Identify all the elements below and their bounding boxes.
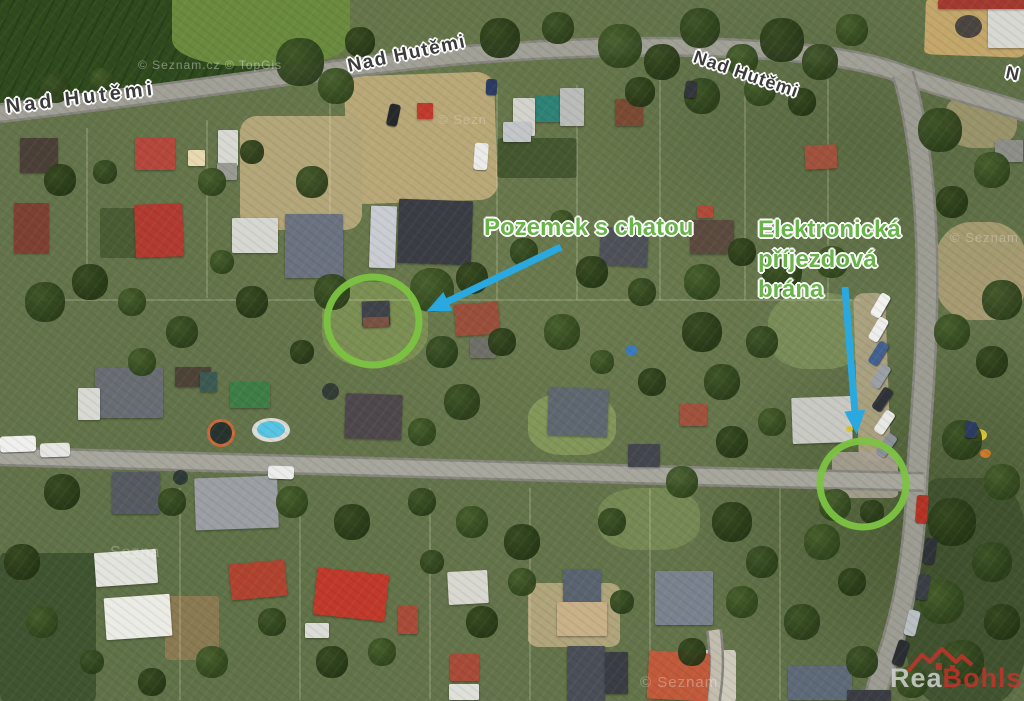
satellite-map[interactable]: Nad HutěmiNad HutěmiNad HutěmiNPozemek s… (0, 0, 1024, 701)
brand-roof-icon (906, 647, 976, 675)
watermarks-layer: © Seznam.cz © TopGis© SeznSezna© Seznam©… (0, 0, 1024, 701)
seznam-watermark: © Seznam.cz © TopGis (138, 58, 282, 72)
seznam-watermark: © Seznam (950, 230, 1019, 245)
brand-text-red: Bohls (943, 663, 1023, 693)
seznam-watermark: © Sezn (438, 112, 487, 127)
seznam-watermark: © Seznam (640, 674, 718, 691)
brand-watermark: ReaBohls (890, 663, 1023, 694)
seznam-watermark: Sezna (110, 544, 160, 562)
brand-text-gray: Rea (890, 663, 943, 693)
